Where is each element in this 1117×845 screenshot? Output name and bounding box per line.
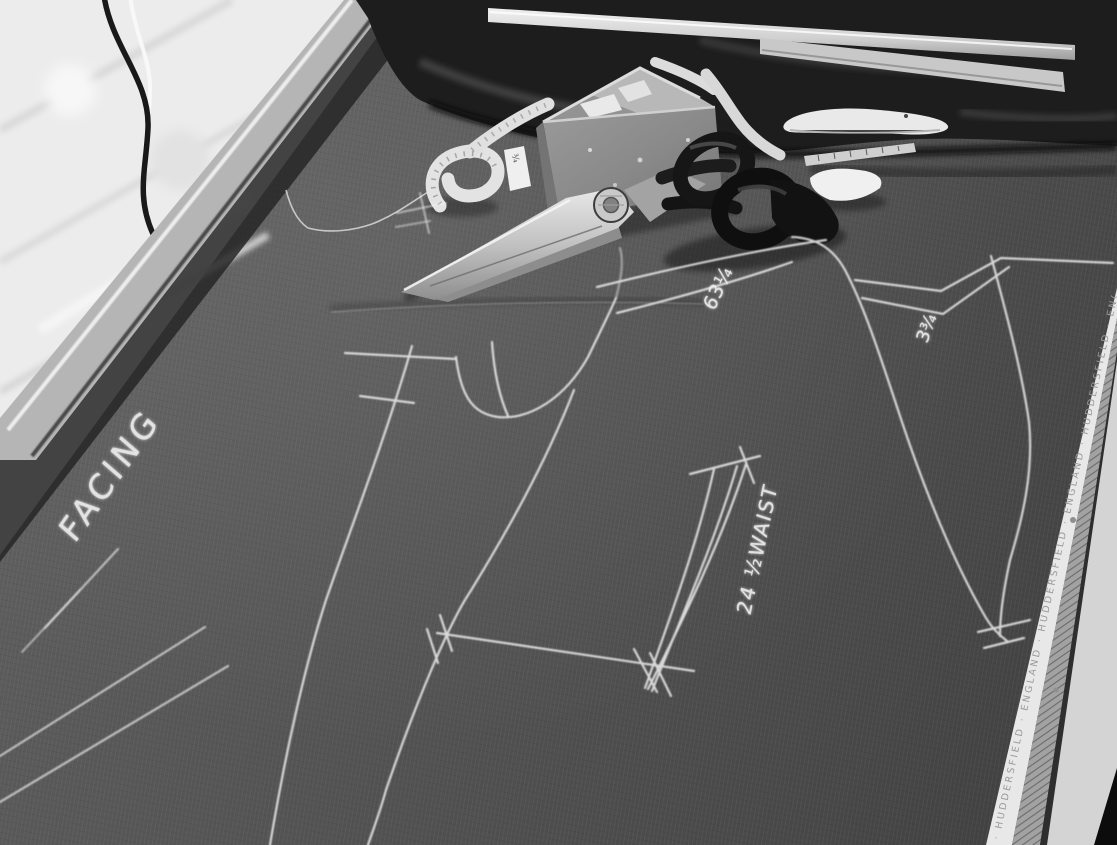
chalk-tick	[427, 629, 438, 663]
tape-tag	[504, 146, 531, 191]
chalk-tick	[22, 590, 80, 652]
chalk-panel-edge	[792, 237, 1007, 641]
chalk-seam-line	[270, 346, 412, 845]
table-speck	[1054, 688, 1059, 693]
chalk-seam-line	[368, 390, 574, 845]
chalk-tick	[420, 193, 429, 233]
chalk-panel-edge	[991, 256, 1030, 636]
chalk-curve-u	[456, 298, 616, 417]
chalk-tick	[345, 353, 456, 359]
chalk-tick	[978, 620, 1030, 632]
photo-illustration	[0, 0, 1117, 845]
chalk-fan-line	[652, 466, 737, 691]
chalk-tick	[396, 221, 430, 227]
table-speck	[1070, 517, 1076, 523]
tailor-cutting-table-photo: FACING 63¼ 24 ½WAIST 3¾ · HUDDERSFIELD ·…	[0, 0, 1117, 845]
chalk-curve-inner	[492, 342, 508, 416]
chalk-fan-line	[645, 469, 714, 688]
chalk-tick	[360, 396, 414, 403]
chalk-line	[0, 627, 205, 756]
chalk-curve-tail	[616, 248, 622, 298]
